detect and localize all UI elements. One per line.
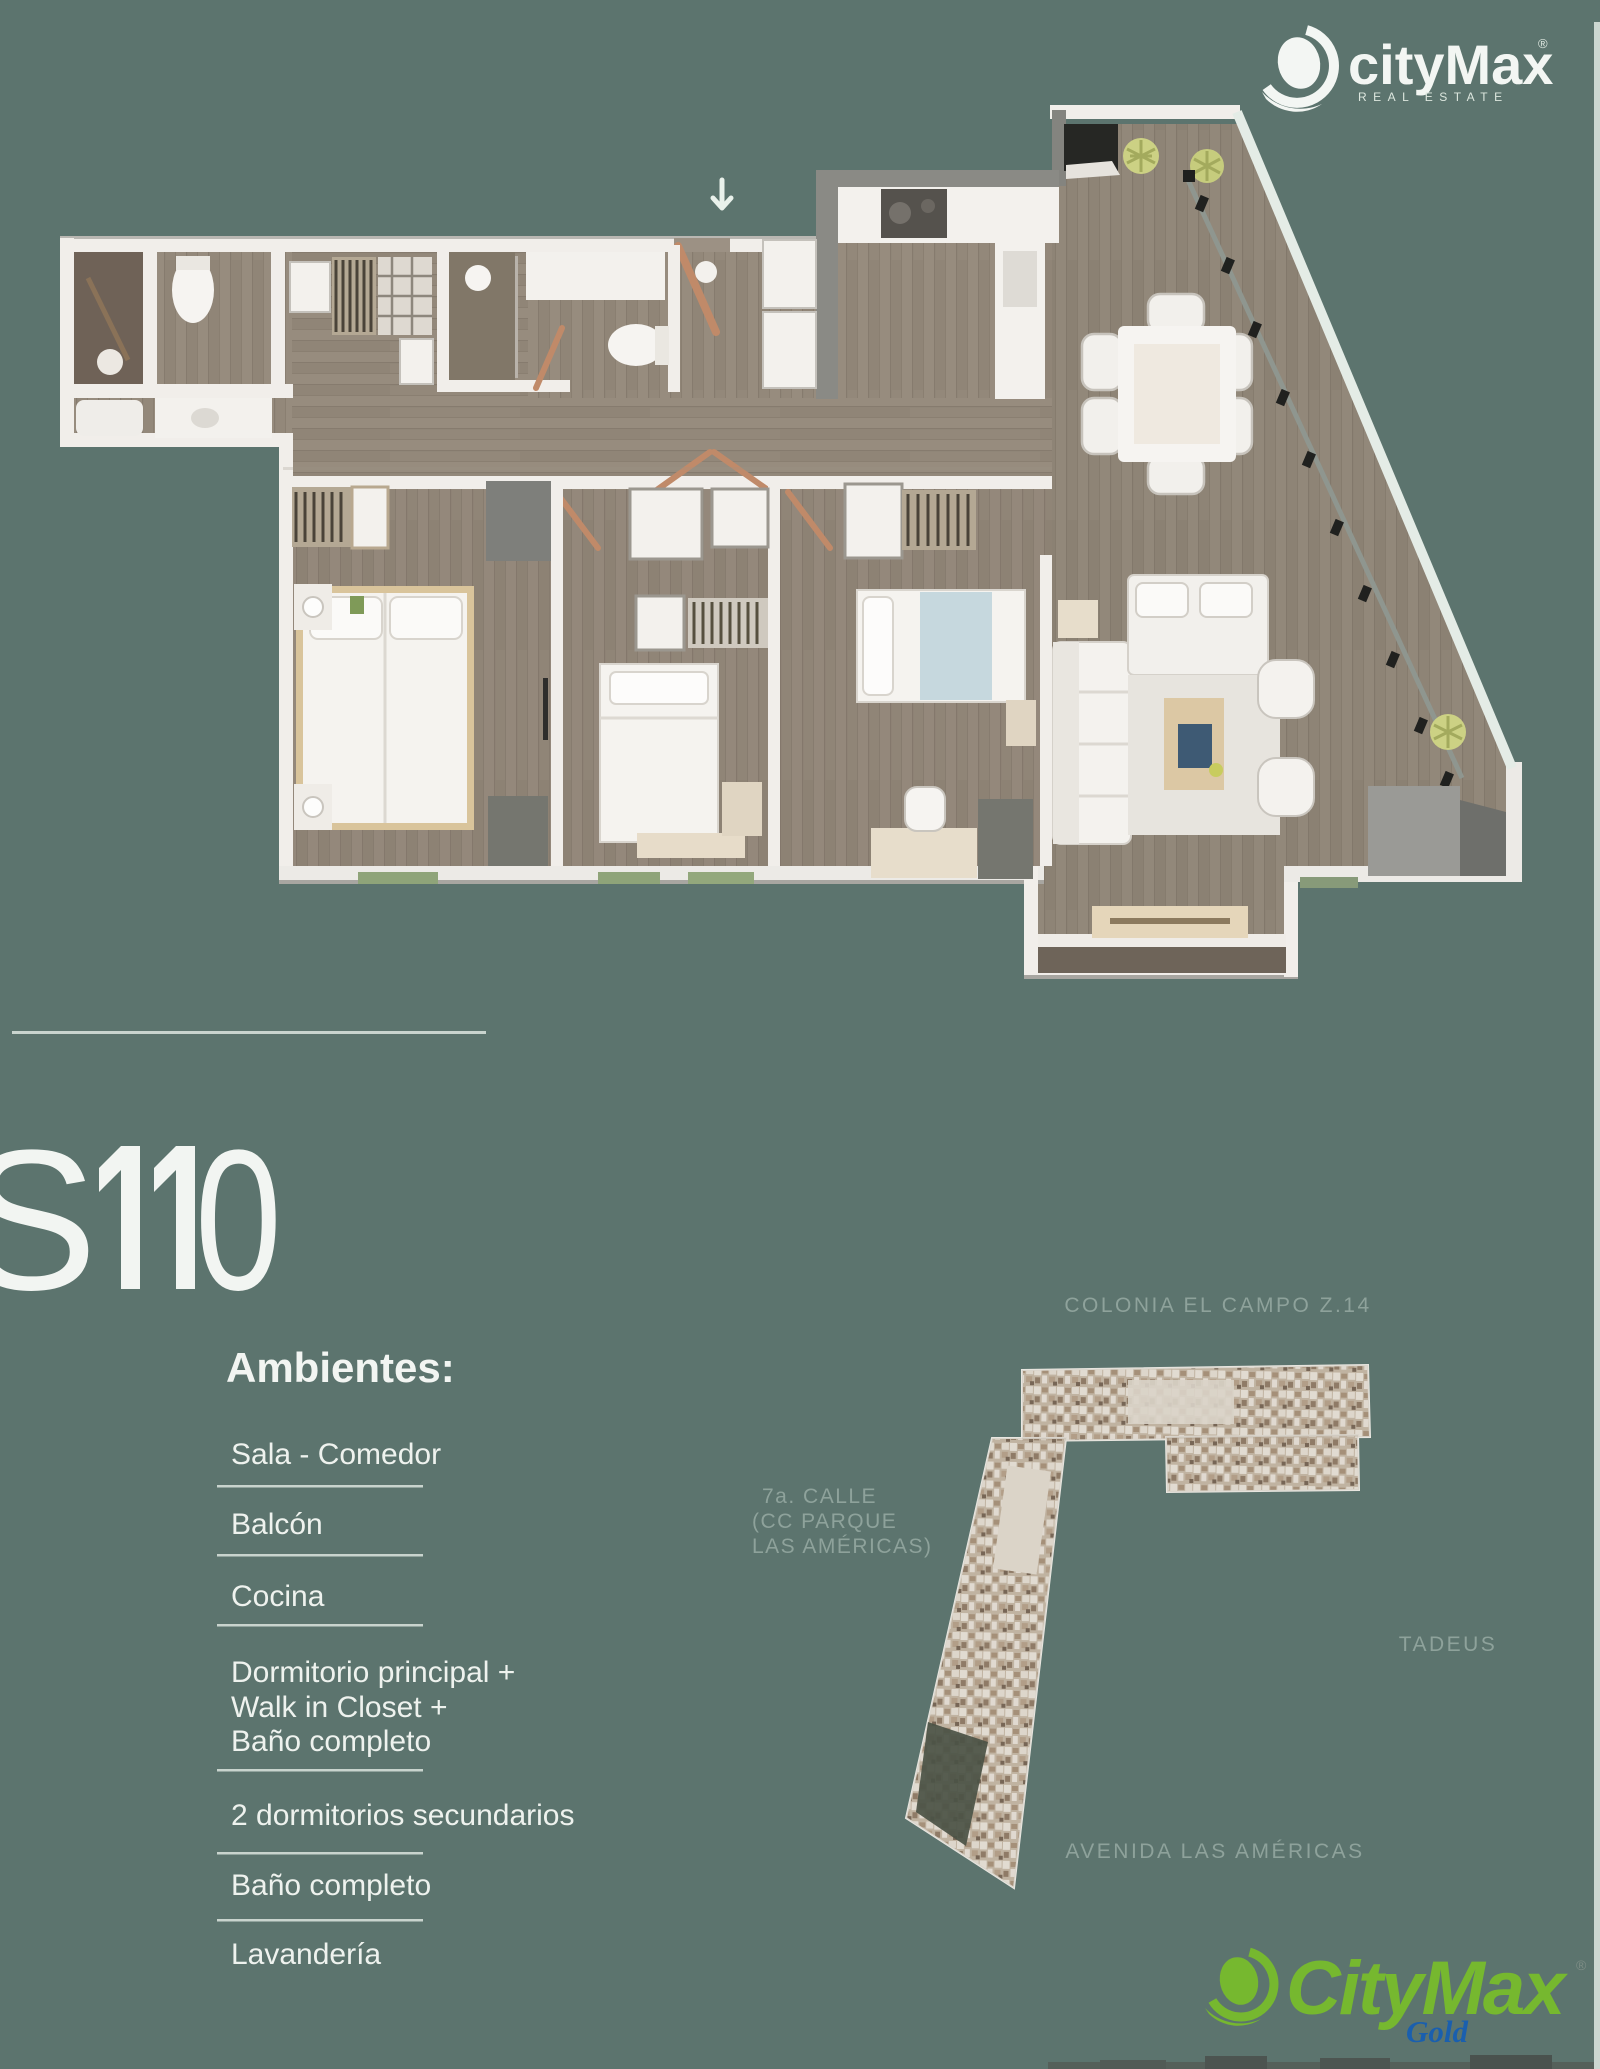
svg-text:Balcón: Balcón bbox=[231, 1508, 323, 1541]
svg-text:Gold: Gold bbox=[1406, 2014, 1469, 2049]
svg-text:REAL ESTATE: REAL ESTATE bbox=[1358, 90, 1509, 104]
svg-text:TADEUS: TADEUS bbox=[1399, 1633, 1498, 1656]
svg-text:Sala - Comedor: Sala - Comedor bbox=[231, 1438, 441, 1471]
svg-text:AVENIDA LAS AMÉRICAS: AVENIDA LAS AMÉRICAS bbox=[1065, 1840, 1364, 1863]
svg-text:0: 0 bbox=[195, 1109, 282, 1332]
svg-text:LAS AMÉRICAS): LAS AMÉRICAS) bbox=[752, 1535, 933, 1558]
svg-text:Cocina: Cocina bbox=[231, 1580, 325, 1613]
svg-text:Walk in Closet +: Walk in Closet + bbox=[231, 1691, 447, 1724]
svg-text:2 dormitorios secundarios: 2 dormitorios secundarios bbox=[231, 1799, 575, 1832]
svg-text:Baño completo: Baño completo bbox=[231, 1869, 431, 1902]
svg-text:COLONIA EL CAMPO Z.14: COLONIA EL CAMPO Z.14 bbox=[1064, 1294, 1371, 1317]
svg-text:Baño completo: Baño completo bbox=[231, 1725, 431, 1758]
svg-text:(CC PARQUE: (CC PARQUE bbox=[752, 1510, 897, 1533]
svg-text:Lavandería: Lavandería bbox=[231, 1938, 381, 1971]
svg-text:®: ® bbox=[1538, 36, 1548, 51]
svg-text:®: ® bbox=[1576, 1957, 1587, 1973]
svg-text:Dormitorio principal +: Dormitorio principal + bbox=[231, 1656, 515, 1689]
svg-text:cityMax: cityMax bbox=[1348, 33, 1553, 96]
svg-text:7a. CALLE: 7a. CALLE bbox=[762, 1485, 877, 1508]
svg-text:Ambientes:: Ambientes: bbox=[226, 1344, 455, 1391]
svg-text:S: S bbox=[0, 1109, 97, 1332]
